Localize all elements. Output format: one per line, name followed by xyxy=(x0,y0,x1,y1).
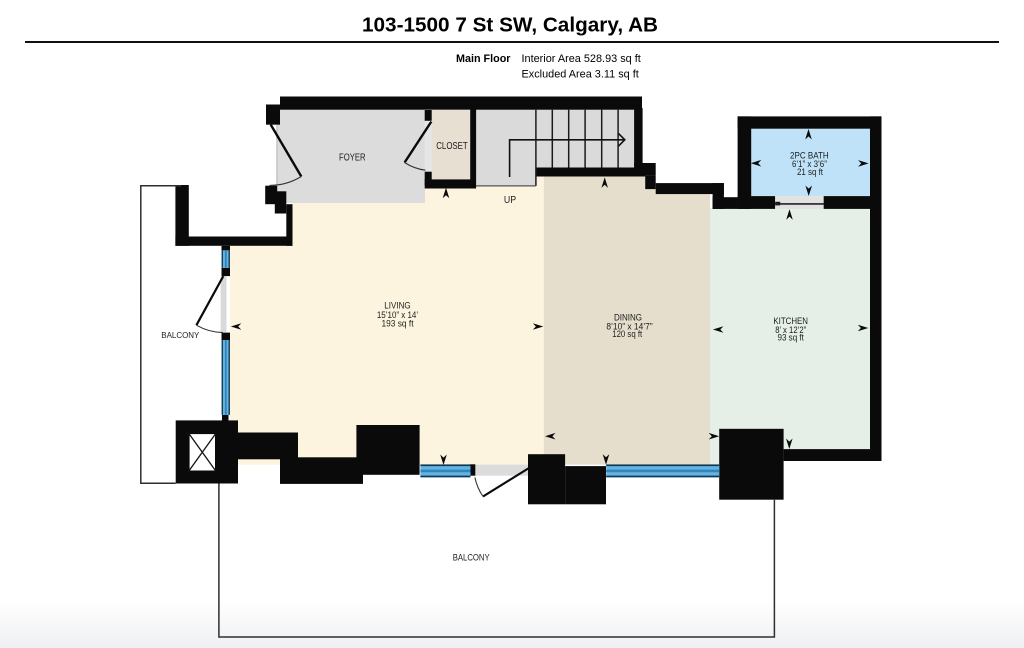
svg-text:BALCONY: BALCONY xyxy=(161,330,199,340)
svg-text:CLOSET: CLOSET xyxy=(436,141,468,152)
svg-text:120 sq ft: 120 sq ft xyxy=(612,329,642,339)
svg-text:UP: UP xyxy=(504,195,516,206)
svg-text:FOYER: FOYER xyxy=(339,153,366,164)
svg-text:21 sq ft: 21 sq ft xyxy=(797,167,823,177)
svg-text:Interior Area 528.93 sq ft: Interior Area 528.93 sq ft xyxy=(522,53,642,65)
svg-text:BALCONY: BALCONY xyxy=(453,552,490,562)
svg-text:193 sq ft: 193 sq ft xyxy=(381,318,414,328)
svg-text:Excluded Area 3.11 sq ft: Excluded Area 3.11 sq ft xyxy=(522,68,640,80)
svg-text:Main Floor: Main Floor xyxy=(456,53,511,65)
svg-text:103-1500 7 St SW, Calgary, AB: 103-1500 7 St SW, Calgary, AB xyxy=(362,14,658,37)
svg-text:93 sq ft: 93 sq ft xyxy=(778,333,805,343)
